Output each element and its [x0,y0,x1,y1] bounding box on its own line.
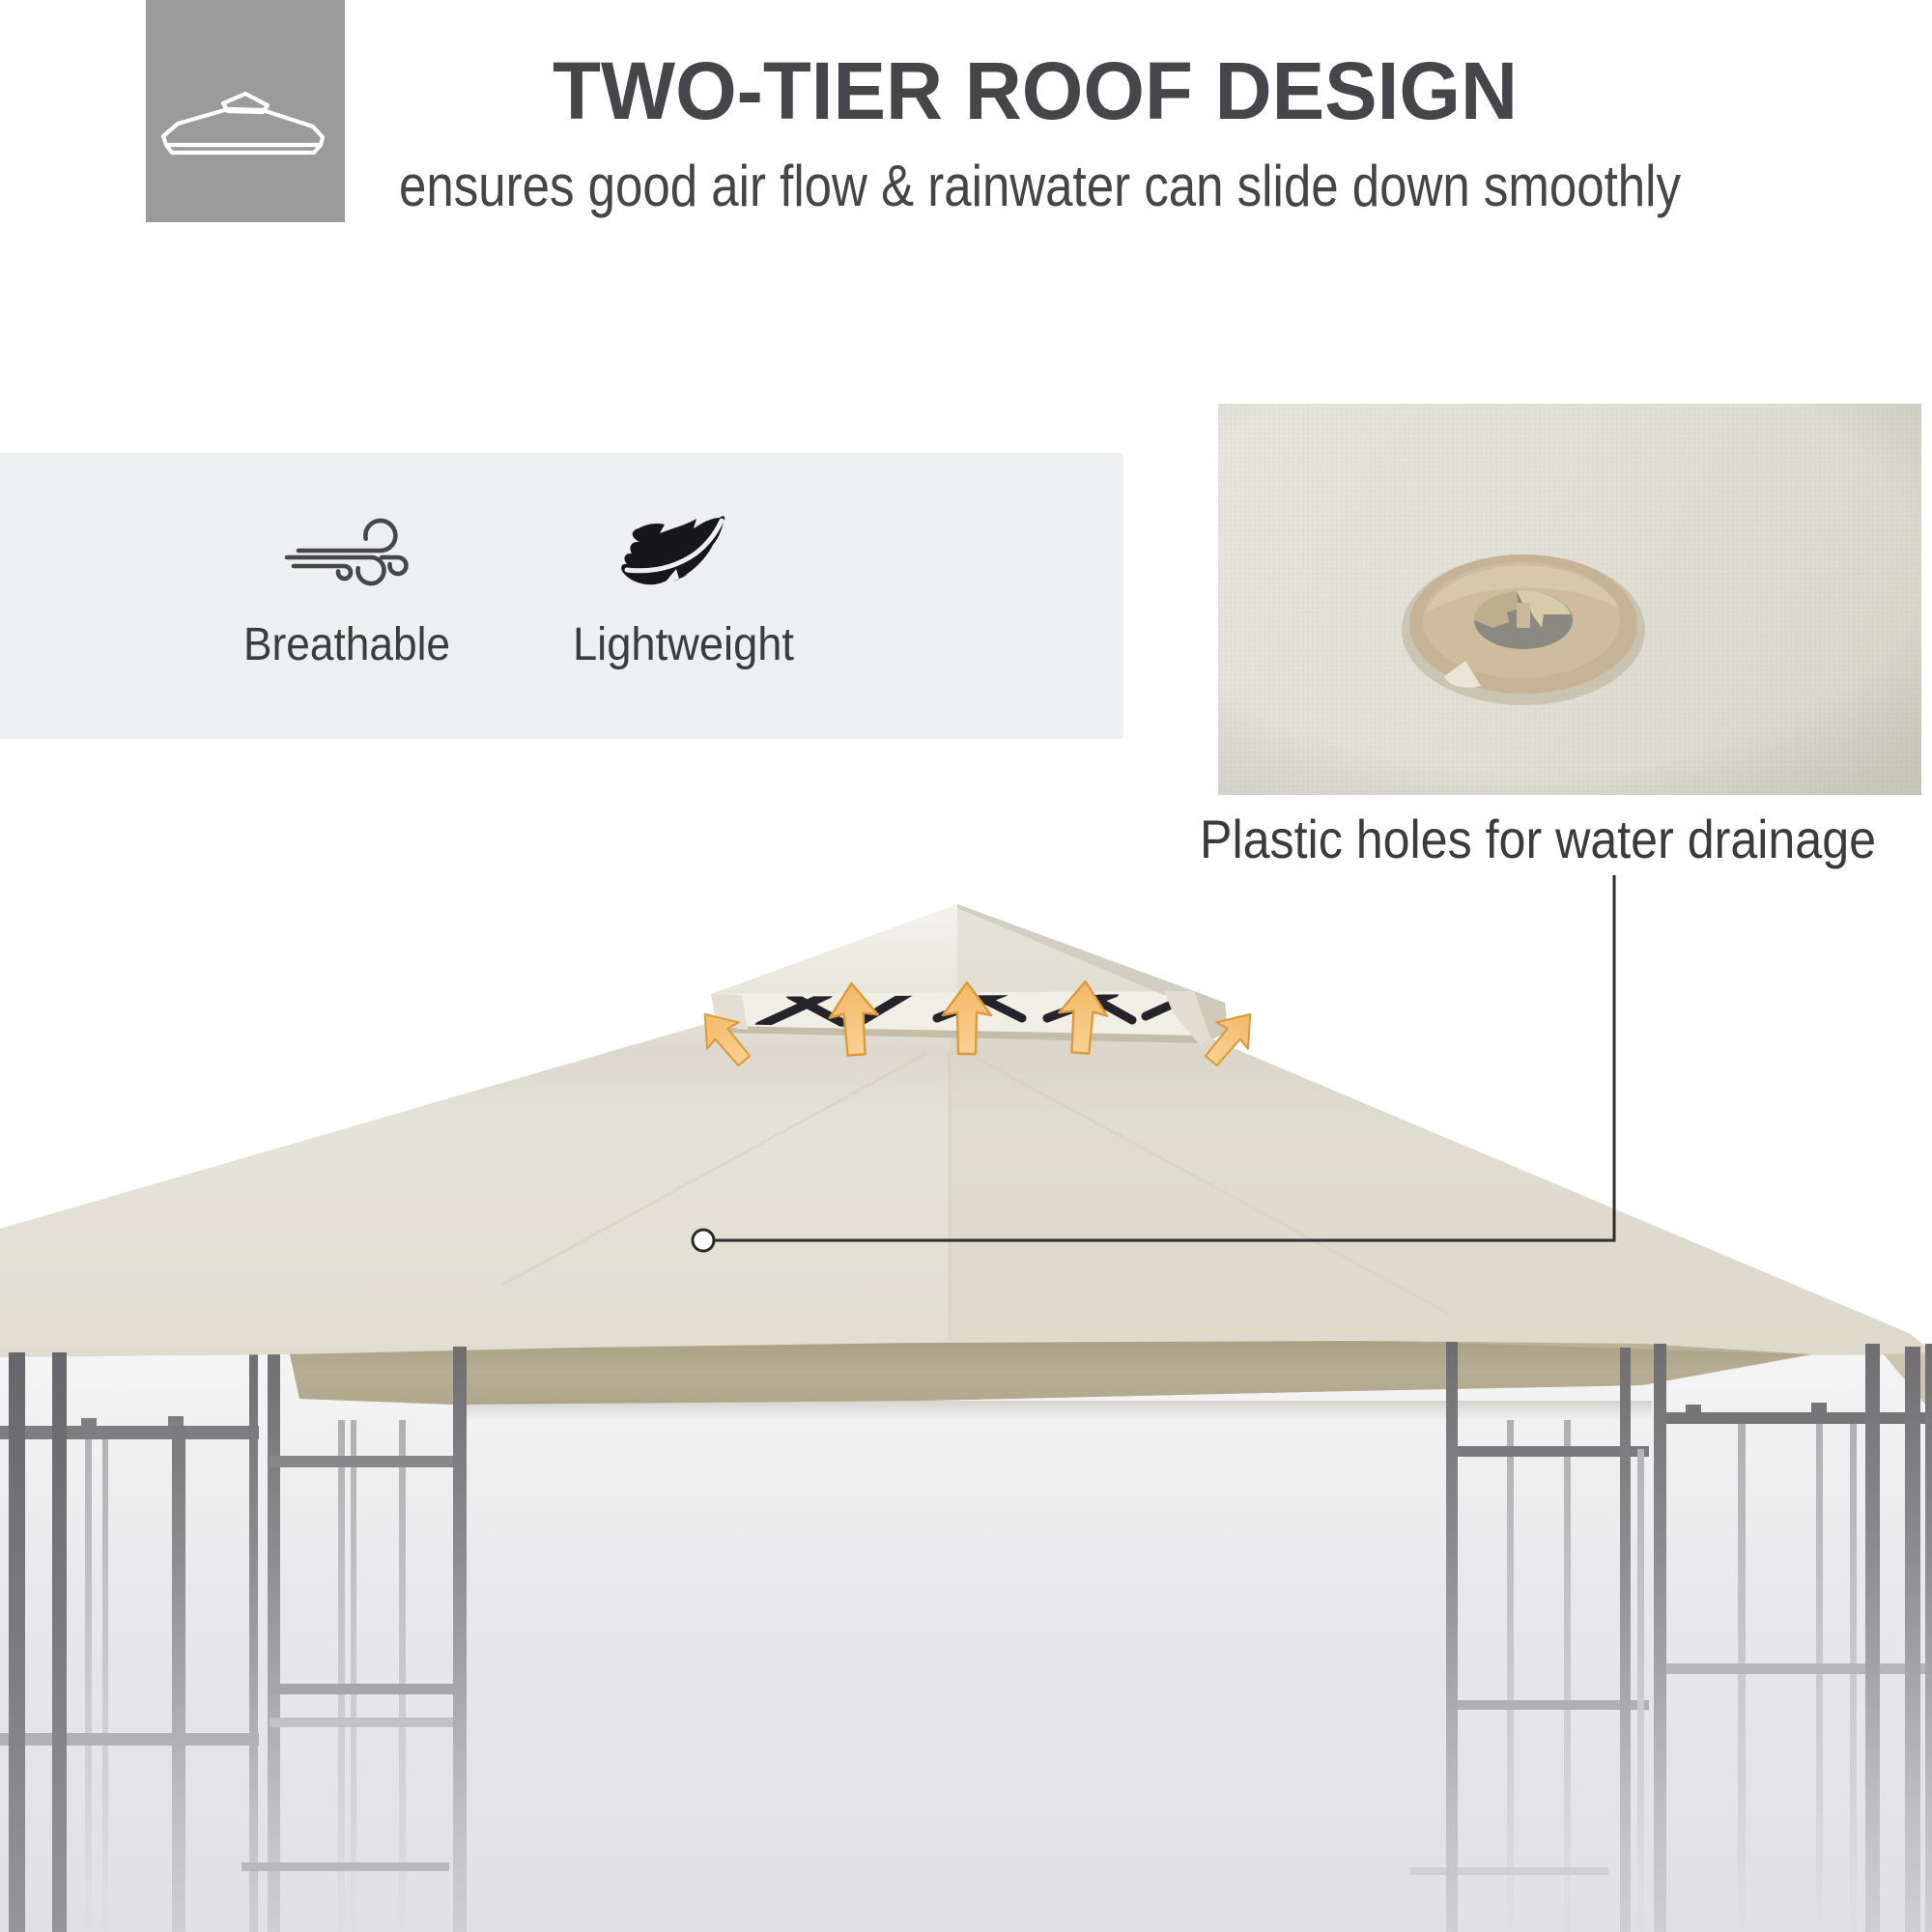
svg-text:Breathable: Breathable [243,619,450,670]
svg-text:Plastic holes for water draina: Plastic holes for water drainage [1200,809,1876,869]
svg-text:ensures good air flow & rainwa: ensures good air flow & rainwater can sl… [399,154,1681,218]
svg-text:Lightweight: Lightweight [573,619,794,670]
svg-text:TWO-TIER ROOF DESIGN: TWO-TIER ROOF DESIGN [553,45,1518,136]
